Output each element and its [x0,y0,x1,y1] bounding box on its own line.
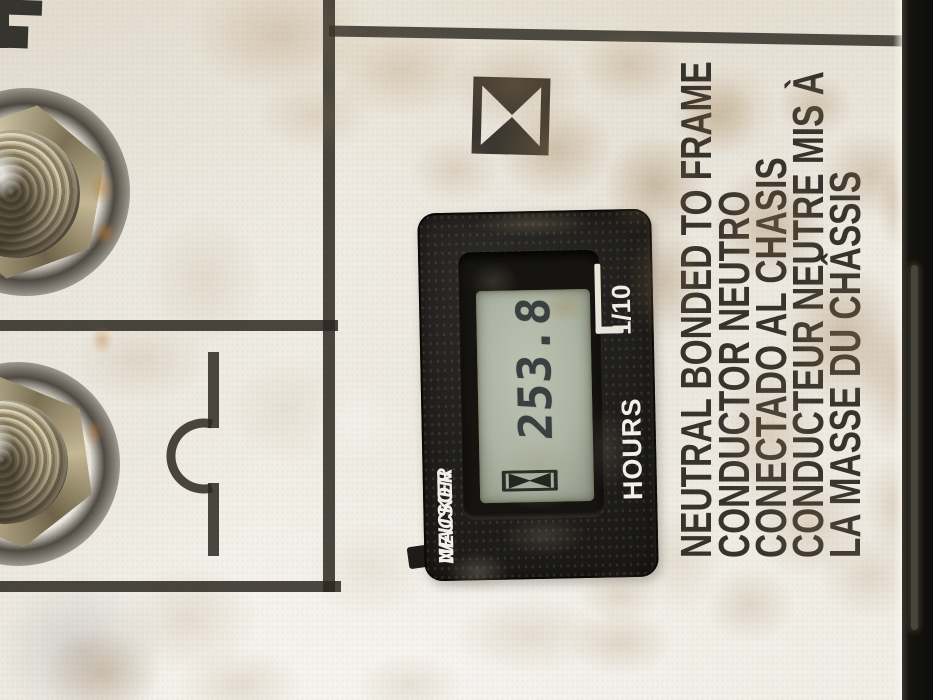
breaker-upper-segment [208,352,219,428]
hourglass-hours-icon [476,81,546,151]
schematic-line-vertical [323,0,335,592]
hour-reading: 253.8 [506,295,563,441]
hour-meter-module: 253.8 WACKER NEUSON HOURS 1/10 [417,209,659,582]
bonding-notice-line-fr-2: LA MASSE DU CHÂSSIS [827,18,865,558]
meter-running-indicator-icon [502,470,558,492]
schematic-line-left-top [0,320,338,331]
rust-stain [90,215,120,251]
hours-unit-label: HOURS [613,390,651,501]
lcd-display: 253.8 [476,289,594,503]
rust-stain [80,412,108,452]
cropped-print-fragment [0,0,9,48]
breaker-arc-icon [171,423,212,489]
rust-stain [84,165,120,211]
brand-line-2: NEUSON [435,471,459,564]
brand-label: WACKER NEUSON [434,433,481,564]
tenths-underline-tick [596,326,624,334]
panel-edge-gleam [911,265,918,630]
breaker-lower-segment [208,483,219,556]
generator-panel-photo: 253.8 WACKER NEUSON HOURS 1/10 NEUTRAL B… [0,0,933,700]
lcd-recess: 253.8 [458,250,605,519]
rust-stain [86,320,118,360]
tenths-resolution-label: 1/10 [603,255,639,336]
